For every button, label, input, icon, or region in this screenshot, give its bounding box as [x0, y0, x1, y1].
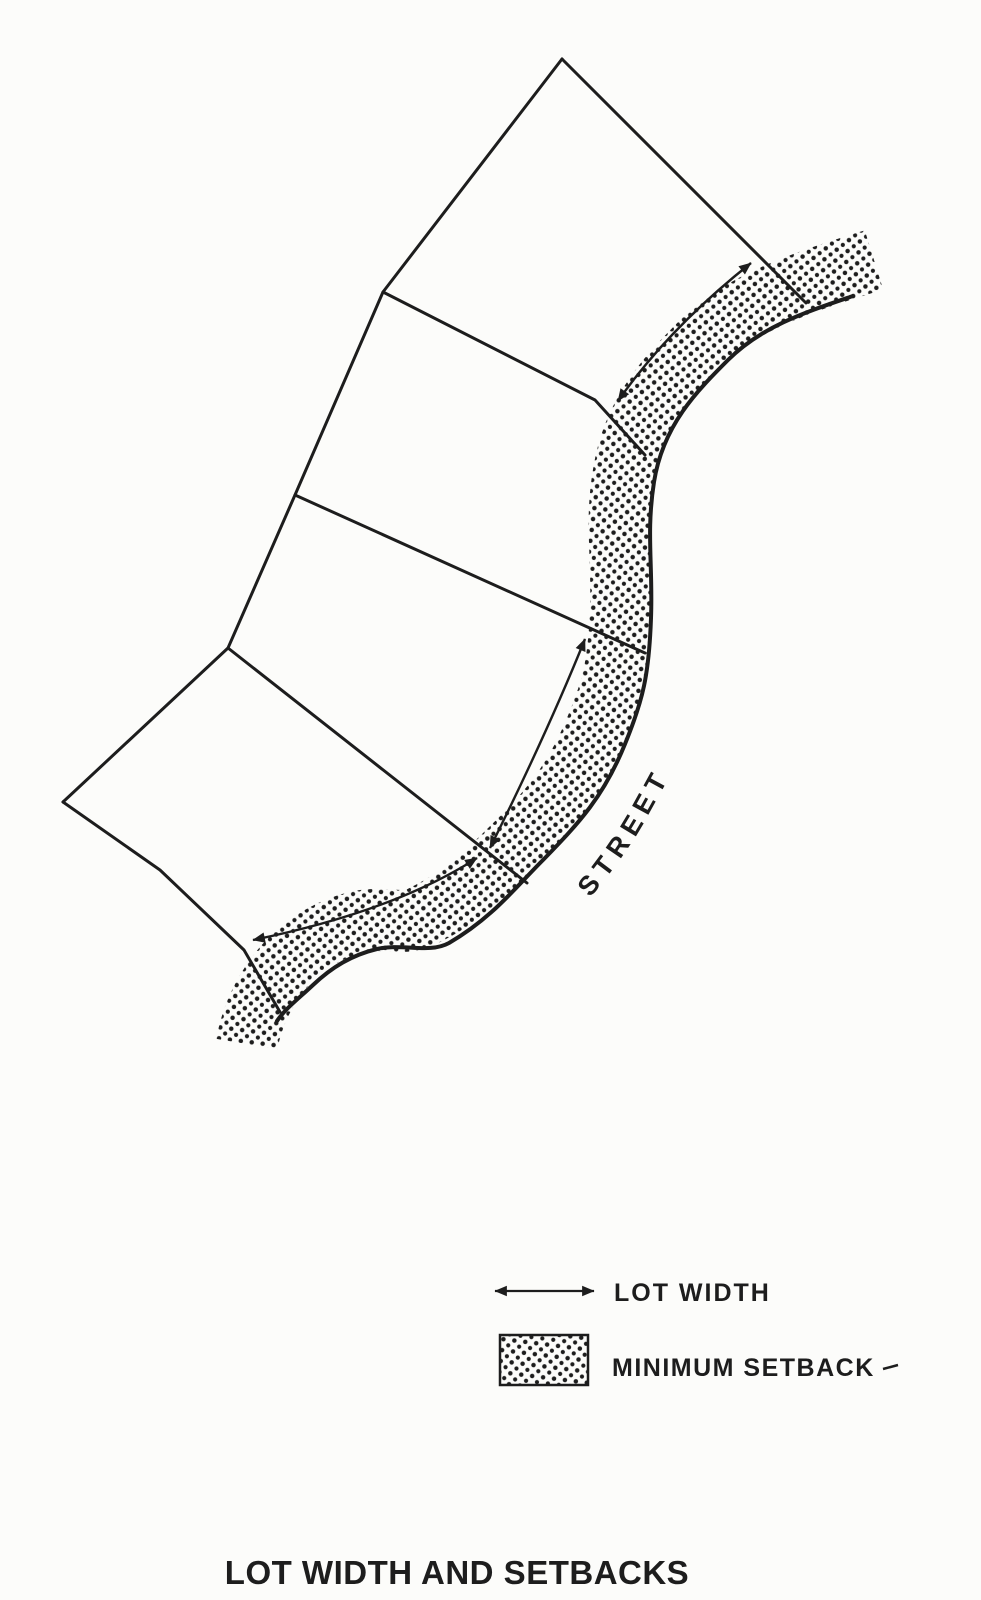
lot-width-setbacks-diagram: STREET LOT WIDTH MINIMUM SETBACK LOT WID…	[0, 0, 981, 1600]
diagram-title: LOT WIDTH AND SETBACKS	[225, 1554, 689, 1591]
scanned-diagram-page: STREET LOT WIDTH MINIMUM SETBACK LOT WID…	[0, 0, 981, 1600]
legend: LOT WIDTH MINIMUM SETBACK	[495, 1279, 898, 1385]
legend-lot-width-label: LOT WIDTH	[614, 1279, 771, 1307]
lot-line-northeast	[562, 59, 806, 303]
legend-setback-swatch	[500, 1335, 588, 1385]
side-lot-line-3	[228, 648, 527, 883]
minimum-setback-band	[247, 260, 874, 1044]
rear-lot-boundary	[63, 59, 562, 802]
legend-minimum-setback-label: MINIMUM SETBACK	[612, 1354, 875, 1382]
stray-dash-mark	[883, 1365, 898, 1369]
